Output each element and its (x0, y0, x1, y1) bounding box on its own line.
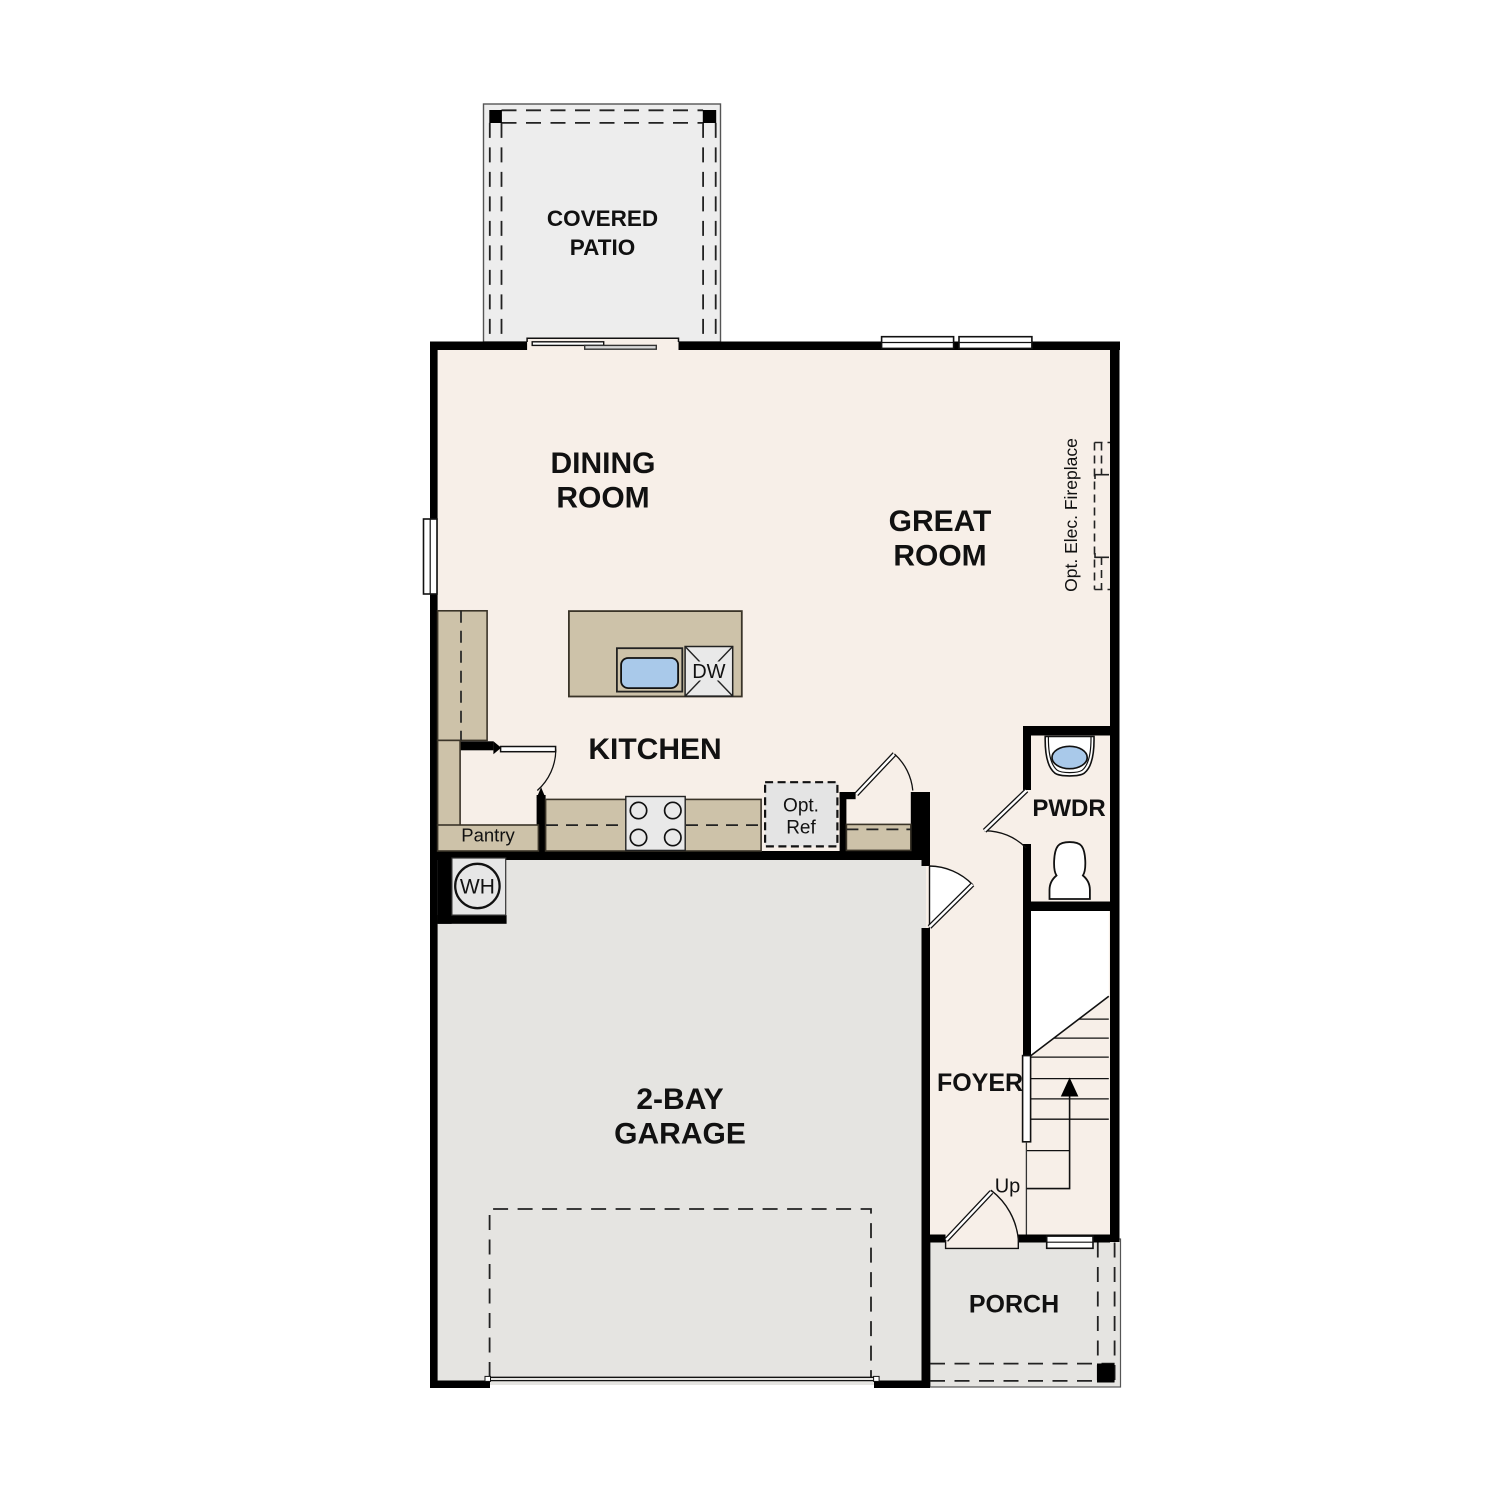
svg-text:2-BAY: 2-BAY (636, 1083, 723, 1116)
svg-text:ROOM: ROOM (556, 482, 649, 515)
svg-text:GARAGE: GARAGE (614, 1118, 746, 1151)
svg-text:KITCHEN: KITCHEN (588, 733, 721, 766)
svg-text:Ref: Ref (786, 818, 816, 839)
svg-text:Pantry: Pantry (461, 825, 515, 846)
svg-text:COVERED: COVERED (547, 206, 658, 231)
svg-text:WH: WH (460, 876, 495, 899)
svg-text:Up: Up (995, 1176, 1021, 1198)
svg-text:GREAT: GREAT (889, 505, 992, 538)
svg-text:PATIO: PATIO (570, 235, 635, 260)
svg-text:DINING: DINING (551, 447, 656, 480)
svg-text:ROOM: ROOM (893, 540, 986, 573)
svg-text:PORCH: PORCH (969, 1291, 1059, 1319)
svg-text:Opt. Elec. Fireplace: Opt. Elec. Fireplace (1061, 438, 1081, 592)
svg-text:DW: DW (692, 661, 725, 683)
svg-text:FOYER: FOYER (937, 1069, 1023, 1097)
svg-text:Opt.: Opt. (783, 796, 819, 817)
svg-text:PWDR: PWDR (1032, 795, 1105, 822)
